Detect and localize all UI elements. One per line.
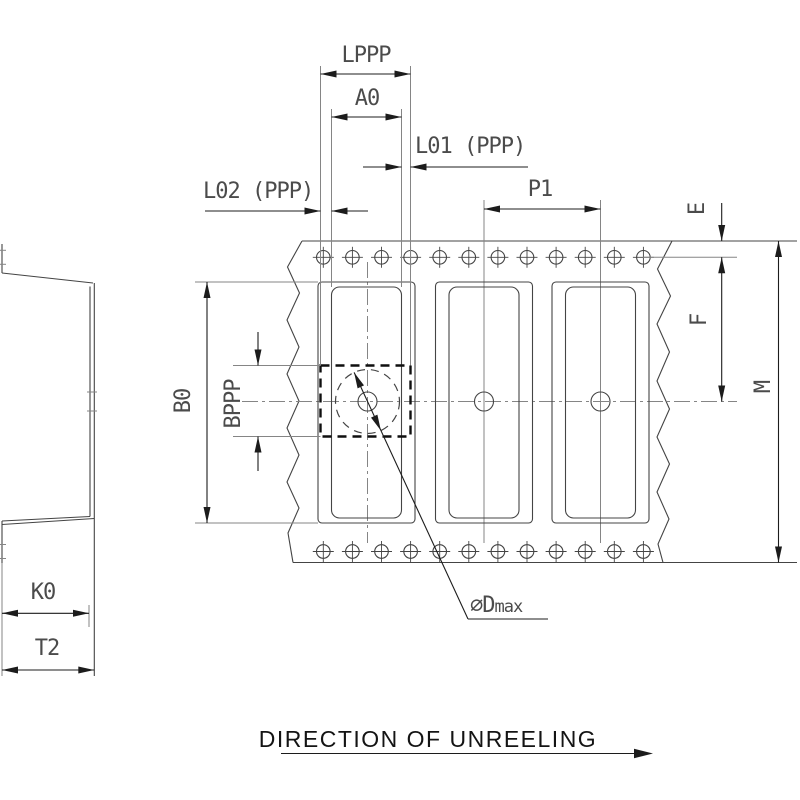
sprocket-hole-section-ticks xyxy=(0,250,97,558)
side-view: K0 T2 xyxy=(0,244,97,676)
tape-reel-drawing: K0 T2 xyxy=(0,0,800,800)
dim-l02: L02 (PPP) xyxy=(203,179,368,215)
arrowhead xyxy=(73,610,89,617)
label-p1: P1 xyxy=(528,177,553,202)
label-f: F xyxy=(687,314,712,326)
drawing-canvas: K0 T2 xyxy=(0,0,800,800)
label-dmax: ∅Dmax xyxy=(470,593,523,618)
arrowhead xyxy=(2,610,18,617)
arrowhead xyxy=(255,437,262,453)
arrowhead xyxy=(204,507,211,523)
arrowhead xyxy=(775,547,782,563)
sprocket-holes-bottom xyxy=(313,541,654,562)
label-e: E xyxy=(685,203,710,215)
tape-view xyxy=(242,200,797,563)
arrowhead xyxy=(775,241,782,257)
arrowhead xyxy=(78,667,94,674)
label-l01: L01 (PPP) xyxy=(415,134,525,159)
unreeling-arrowhead xyxy=(634,749,653,758)
label-a0: A0 xyxy=(355,86,380,111)
arrowhead xyxy=(2,667,18,674)
arrowhead xyxy=(484,206,500,213)
arrowhead xyxy=(332,208,348,215)
label-m: M xyxy=(751,380,776,393)
arrowhead xyxy=(386,114,402,121)
unreeling-direction: DIRECTION OF UNREELING xyxy=(259,726,653,758)
arrowhead xyxy=(371,415,381,431)
sprocket-holes-top xyxy=(313,247,654,268)
arrowhead xyxy=(255,350,262,366)
direction-of-unreeling-label: DIRECTION OF UNREELING xyxy=(259,726,597,752)
pocket-1 xyxy=(318,282,415,523)
dim-f: F xyxy=(687,257,725,401)
arrowhead xyxy=(718,386,725,402)
dimensions: LPPP A0 L01 (PPP) L02 (PPP) xyxy=(171,43,782,619)
dim-e: E xyxy=(685,203,725,273)
arrowhead xyxy=(718,225,725,241)
arrowhead xyxy=(411,164,427,171)
label-t2: T2 xyxy=(35,636,60,661)
dim-l01: L01 (PPP) xyxy=(363,134,528,171)
label-lppp: LPPP xyxy=(342,43,392,68)
label-bppp: BPPP xyxy=(221,379,246,429)
arrowhead xyxy=(204,282,211,298)
label-b0: B0 xyxy=(171,389,196,414)
arrowhead xyxy=(305,208,321,215)
arrowhead xyxy=(395,71,411,78)
dim-m: M xyxy=(751,241,782,563)
label-k0: K0 xyxy=(31,580,56,605)
arrowhead xyxy=(386,164,402,171)
dim-t2: T2 xyxy=(2,636,94,674)
arrowhead xyxy=(321,71,337,78)
arrowhead xyxy=(332,114,348,121)
label-l02: L02 (PPP) xyxy=(203,179,313,204)
dim-p1: P1 xyxy=(484,177,601,213)
arrowhead xyxy=(585,206,601,213)
arrowhead xyxy=(354,372,364,388)
